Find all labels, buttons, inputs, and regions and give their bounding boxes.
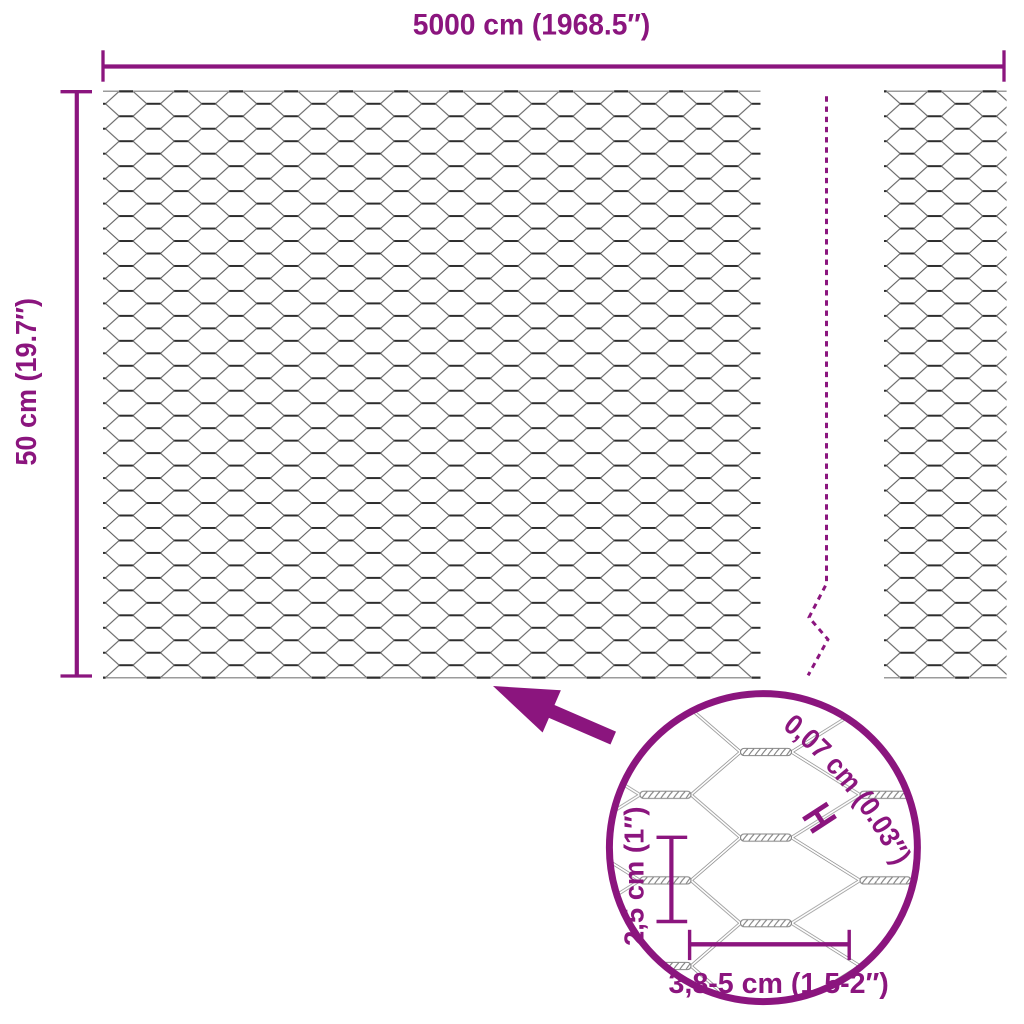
svg-text:50 cm (19.7″): 50 cm (19.7″)	[11, 298, 43, 466]
svg-text:5000 cm (1968.5″): 5000 cm (1968.5″)	[413, 9, 651, 42]
svg-text:2,5 cm (1″): 2,5 cm (1″)	[619, 807, 650, 947]
svg-text:3,8-5 cm (1.5-2″): 3,8-5 cm (1.5-2″)	[669, 968, 889, 1000]
